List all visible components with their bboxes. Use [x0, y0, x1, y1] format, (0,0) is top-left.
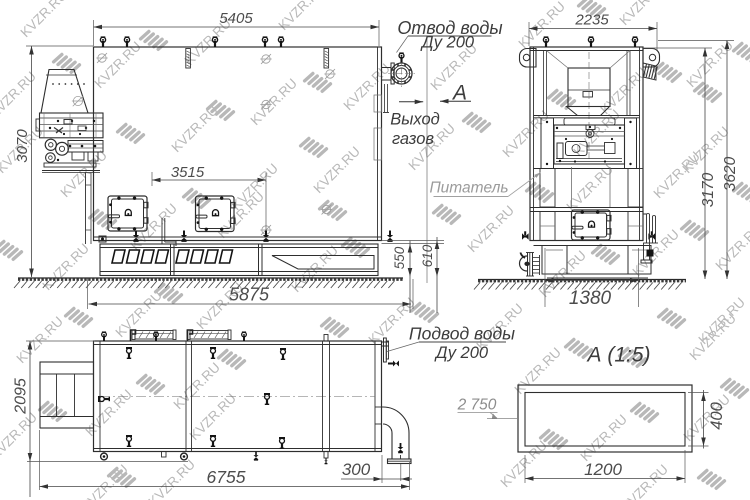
svg-text:550: 550 [392, 246, 407, 269]
svg-text:1200: 1200 [584, 460, 622, 479]
svg-text:2235: 2235 [574, 12, 609, 29]
svg-text:Ду 200: Ду 200 [434, 344, 489, 362]
svg-text:2095: 2095 [13, 378, 30, 415]
svg-text:3515: 3515 [171, 164, 205, 181]
svg-text:3170: 3170 [700, 172, 717, 207]
svg-text:6755: 6755 [207, 467, 246, 487]
svg-text:Выход: Выход [390, 111, 440, 129]
svg-text:Подвод воды: Подвод воды [409, 324, 515, 344]
svg-text:газов: газов [392, 130, 434, 148]
svg-text:5875: 5875 [229, 285, 270, 305]
svg-text:Питатель: Питатель [429, 180, 508, 197]
svg-text:2 750: 2 750 [457, 397, 497, 414]
svg-text:5405: 5405 [219, 10, 253, 27]
svg-text:300: 300 [342, 460, 371, 479]
svg-text:А (1:5): А (1:5) [585, 344, 650, 367]
svg-text:610: 610 [420, 244, 435, 267]
svg-text:3070: 3070 [14, 129, 31, 163]
svg-text:1380: 1380 [569, 288, 612, 309]
svg-text:400: 400 [708, 401, 726, 429]
svg-text:3620: 3620 [722, 156, 739, 191]
